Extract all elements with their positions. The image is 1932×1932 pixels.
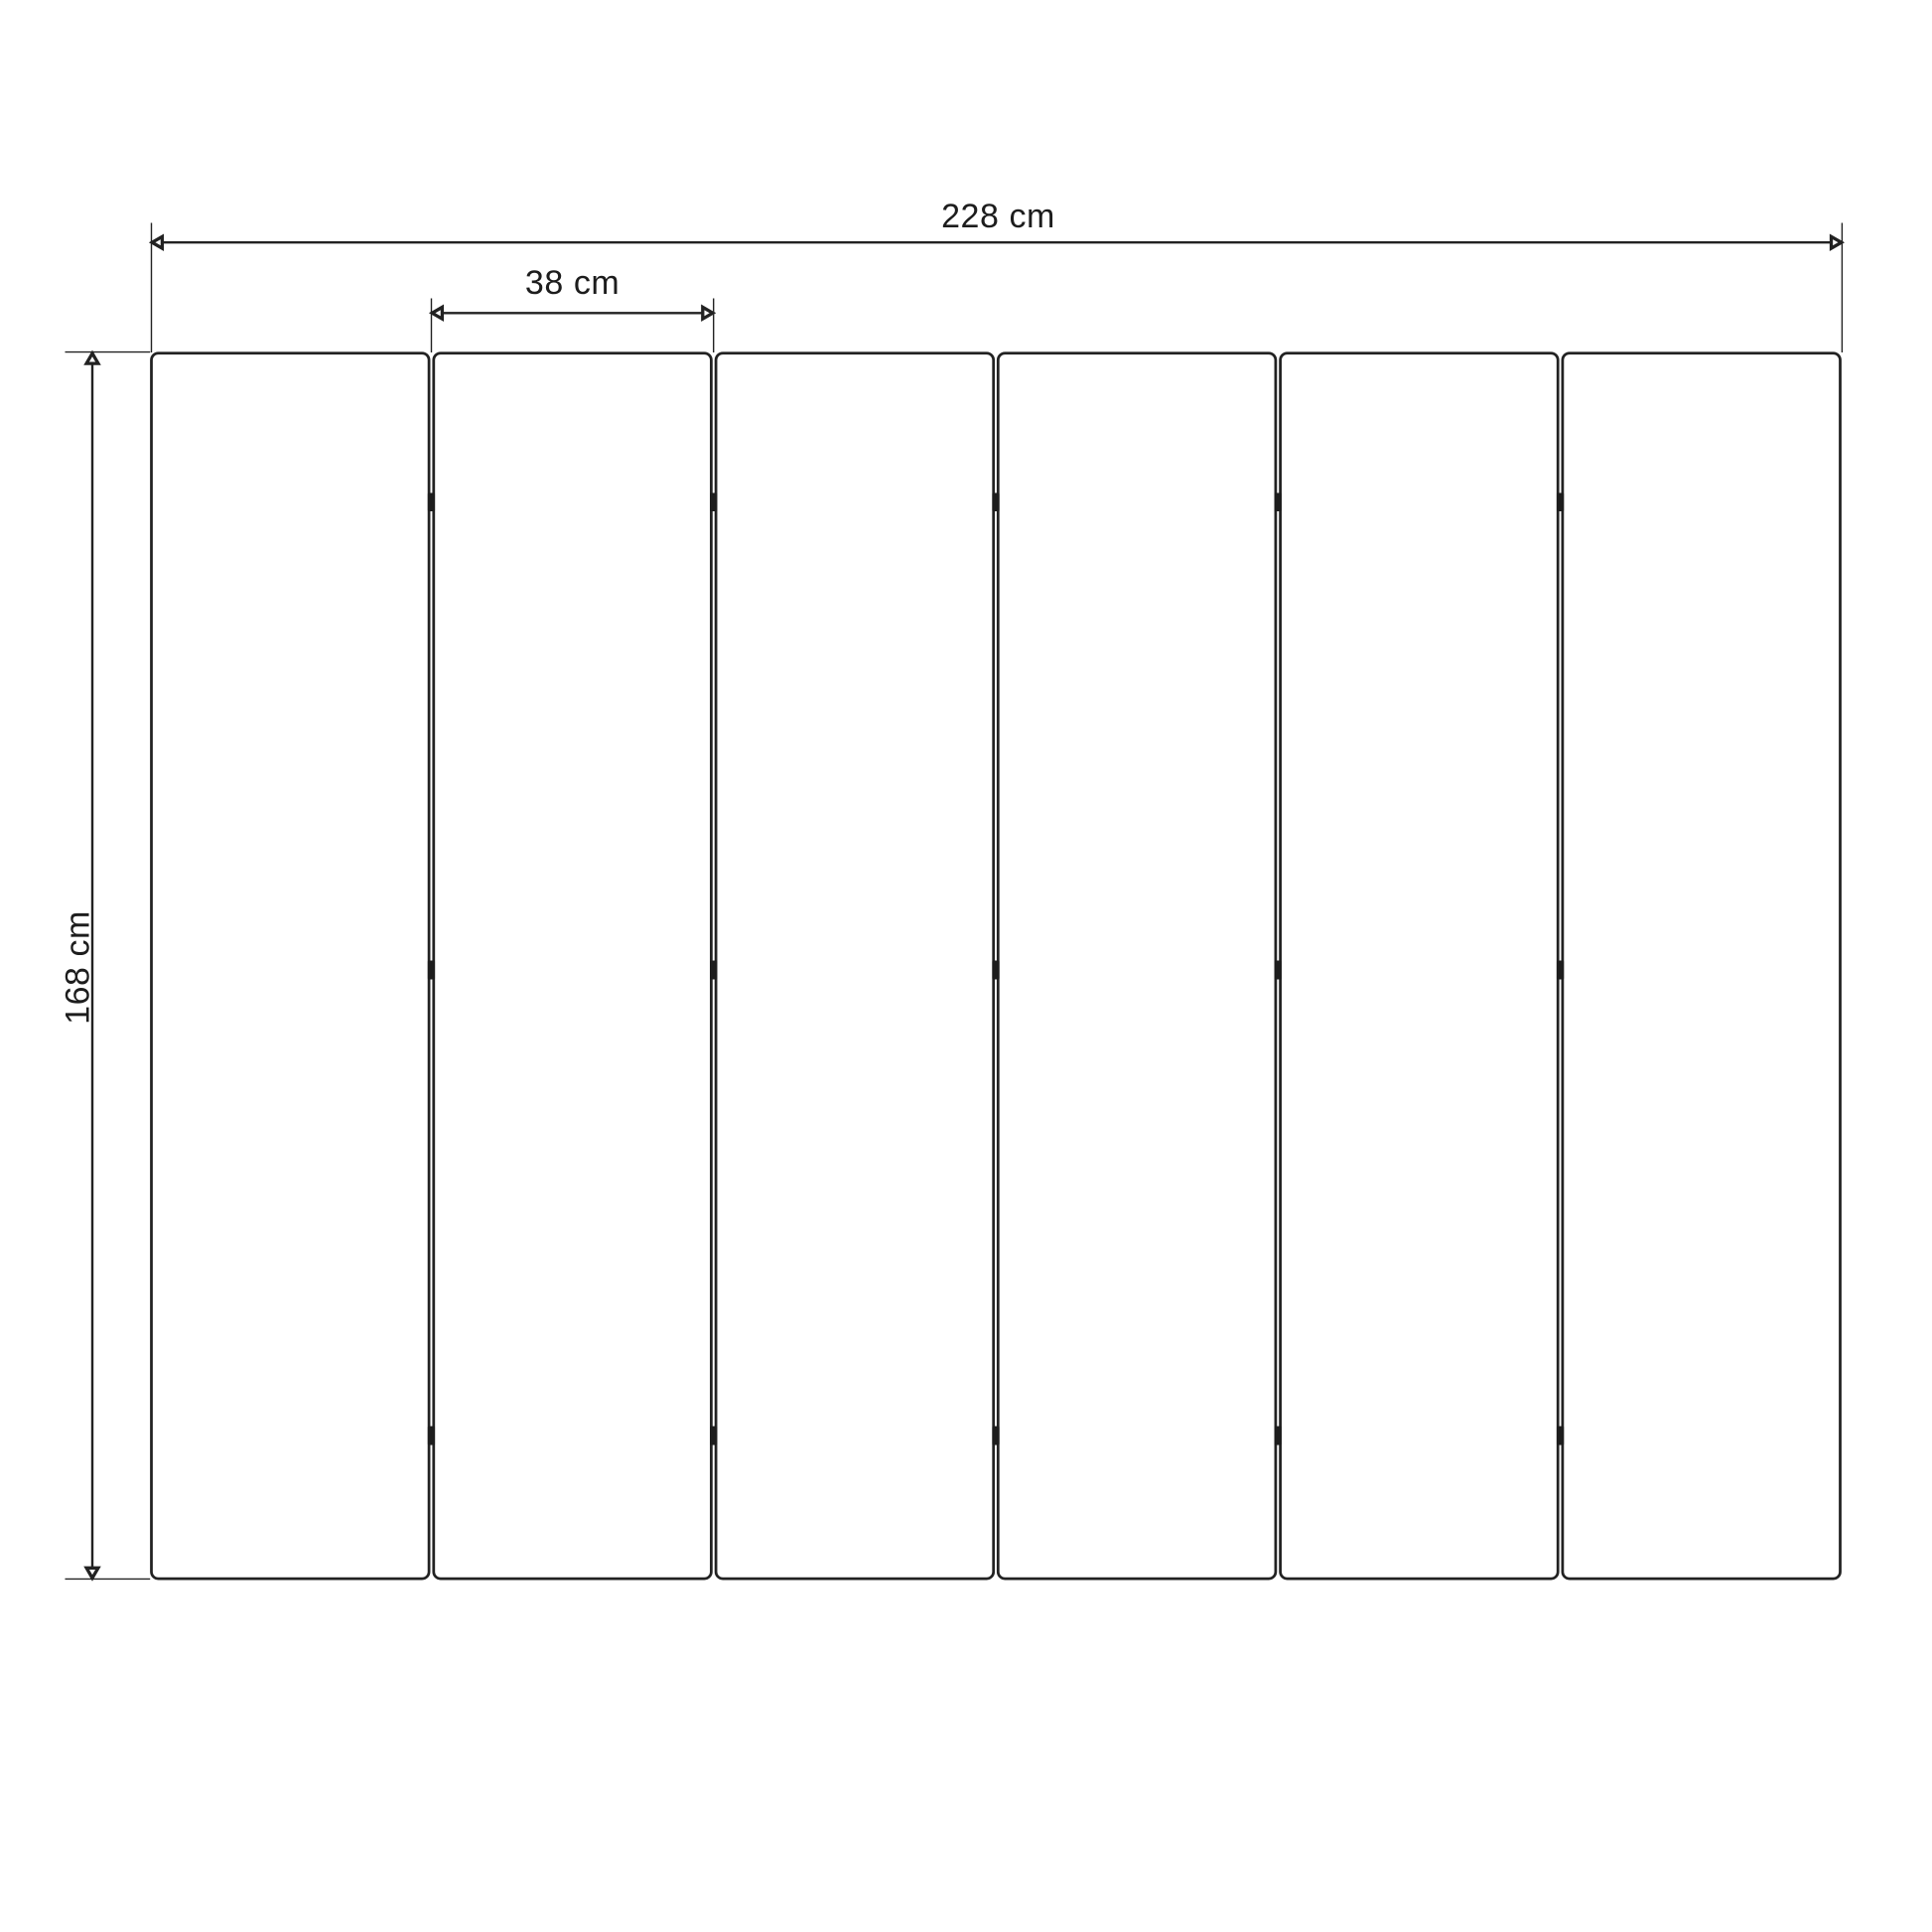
svg-text:228 cm: 228 cm (941, 198, 1055, 235)
svg-text:38 cm: 38 cm (525, 264, 620, 302)
svg-text:168 cm: 168 cm (60, 910, 97, 1025)
